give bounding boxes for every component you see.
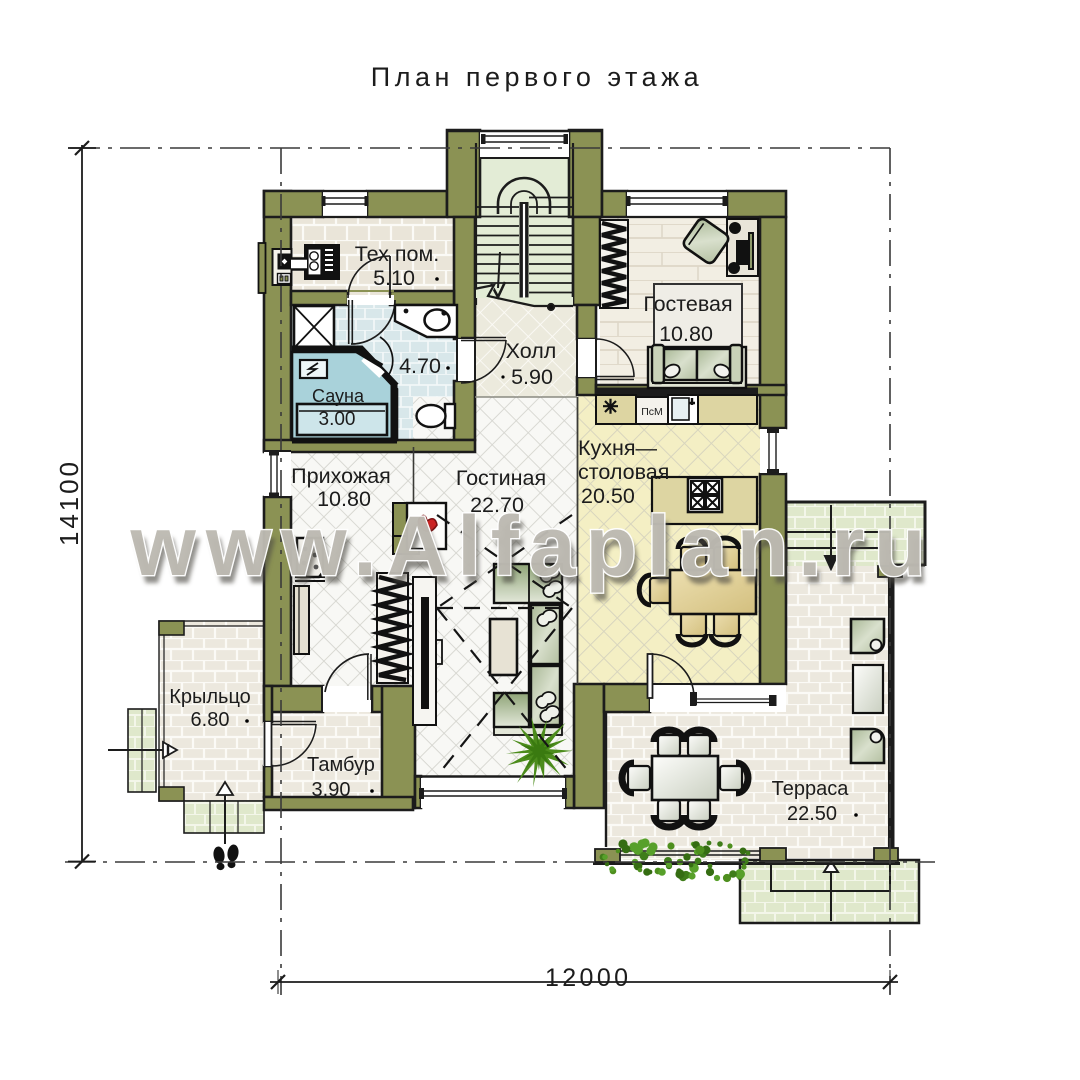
svg-text:Гостевая: Гостевая: [643, 292, 732, 316]
svg-text:22.50: 22.50: [787, 803, 837, 825]
svg-text:ПсМ: ПсМ: [641, 406, 663, 418]
svg-text:Прихожая: Прихожая: [291, 464, 391, 488]
svg-text:10.80: 10.80: [659, 322, 713, 346]
svg-text:Гостиная: Гостиная: [456, 466, 546, 490]
svg-text:12000: 12000: [545, 964, 628, 992]
svg-text:3.90: 3.90: [312, 779, 351, 801]
svg-text:Крыльцо: Крыльцо: [169, 686, 251, 708]
svg-text:5.90: 5.90: [511, 365, 553, 389]
svg-text:5.10: 5.10: [373, 266, 415, 290]
svg-text:4.70: 4.70: [399, 354, 441, 378]
svg-text:Кухня—: Кухня—: [578, 436, 658, 460]
svg-text:Холл: Холл: [506, 339, 557, 363]
svg-text:столовая: столовая: [578, 460, 669, 484]
svg-text:Сауна: Сауна: [312, 386, 365, 406]
svg-text:Терраса: Терраса: [772, 778, 850, 800]
svg-text:3.00: 3.00: [319, 409, 356, 430]
svg-text:6.80: 6.80: [191, 709, 230, 731]
svg-text:Тех пом.: Тех пом.: [355, 242, 440, 266]
svg-text:Тамбур: Тамбур: [307, 754, 375, 776]
svg-text:14100: 14100: [54, 462, 84, 546]
svg-text:www.Alfaplan.ru: www.Alfaplan.ru: [130, 499, 936, 593]
svg-text:План первого этажа: План первого этажа: [371, 62, 703, 92]
